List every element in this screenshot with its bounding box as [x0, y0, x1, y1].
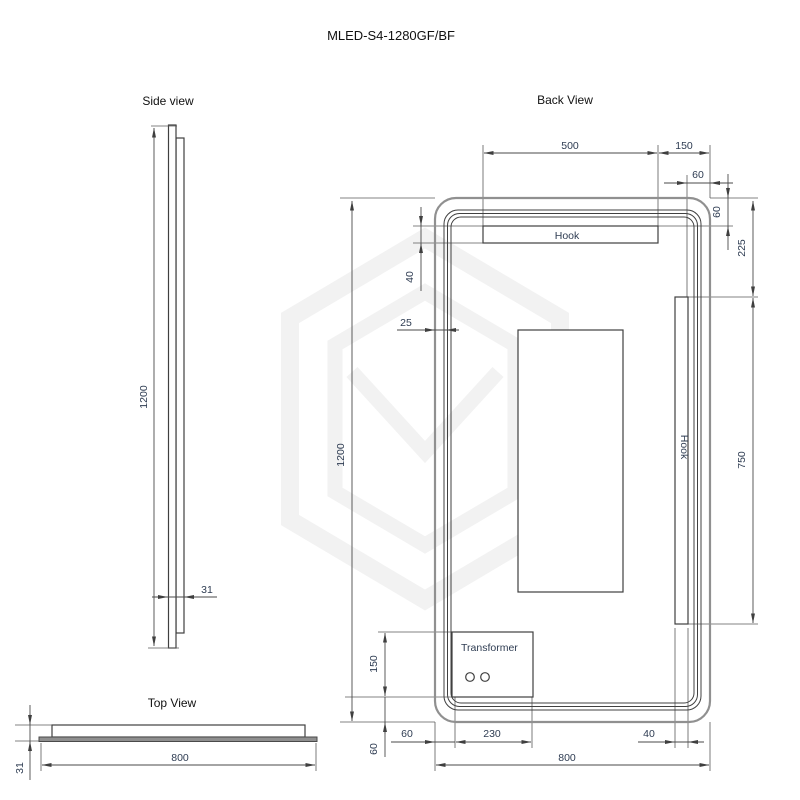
side-view-mirror-glass [169, 125, 177, 648]
back-width-dim: 800 [558, 752, 576, 764]
top-view-backing-panel [52, 725, 305, 737]
center-cutout-panel [518, 330, 623, 592]
side-view-drawing [169, 125, 185, 648]
drawing-canvas: MLED-S4-1280GF/BF Side view 1200 31 Top … [0, 0, 800, 800]
top-view-dimensions [30, 705, 315, 780]
corner-offset-h-dim: 60 [692, 169, 704, 181]
top-view-drawing [39, 725, 317, 742]
top-view-label: Top View [148, 696, 197, 710]
right-hook-bracket [675, 297, 688, 624]
transformer-left-offset-dim: 60 [401, 728, 413, 740]
top-view-width-dim: 800 [171, 752, 189, 764]
corner-offset-v-dim: 60 [711, 206, 723, 218]
drawing-title: MLED-S4-1280GF/BF [327, 28, 455, 43]
hook-to-edge-dim: 150 [675, 140, 693, 152]
back-view-label: Back View [537, 93, 593, 107]
left-hook-height-dim: 40 [404, 271, 416, 283]
technical-drawing-page: MLED-S4-1280GF/BF Side view 1200 31 Top … [0, 0, 800, 800]
right-hook-width-dim: 40 [643, 728, 655, 740]
frame-inset-dim: 25 [400, 317, 412, 329]
side-view-thickness-dim: 31 [201, 584, 213, 596]
right-hook-label: Hook [678, 435, 690, 460]
side-view-label: Side view [142, 94, 194, 108]
top-hook-width-dim: 500 [561, 140, 579, 152]
transformer-port-left [466, 673, 475, 682]
top-hook-label: Hook [555, 230, 580, 242]
back-height-dim: 1200 [335, 443, 347, 467]
hook-top-offset-dim: 225 [736, 239, 748, 257]
transformer-port-right [481, 673, 490, 682]
side-view-height-dim: 1200 [138, 385, 150, 409]
transformer-height-dim: 150 [368, 655, 380, 673]
transformer-width-dim: 230 [483, 728, 501, 740]
side-view-backing-panel [176, 138, 184, 633]
bottom-edge-offset-dim: 60 [368, 743, 380, 755]
top-view-thickness-dim: 31 [14, 762, 26, 774]
transformer-label: Transformer [461, 642, 518, 654]
right-hook-length-dim: 750 [736, 451, 748, 469]
top-view-mirror-glass [39, 737, 317, 742]
